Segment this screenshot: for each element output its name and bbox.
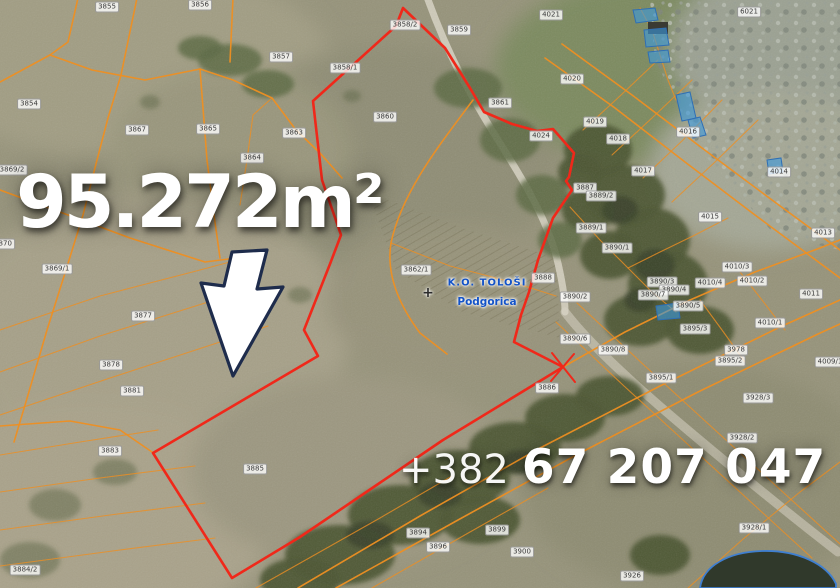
city-label: Podgorica (457, 296, 516, 308)
map-center-cross: + (422, 285, 434, 301)
map-canvas[interactable] (0, 0, 840, 588)
listing-map-image: 385538563858/238594021602138573858/13854… (0, 0, 840, 588)
region-label: K.O. TOLOŠI (448, 278, 527, 289)
grain-overlay (0, 0, 840, 588)
phone-overlay: +382 67 207 047 (399, 440, 826, 495)
phone-number: 67 207 047 (522, 440, 826, 495)
area-headline: 95.272m² (16, 166, 382, 239)
phone-prefix: +382 (399, 447, 509, 493)
